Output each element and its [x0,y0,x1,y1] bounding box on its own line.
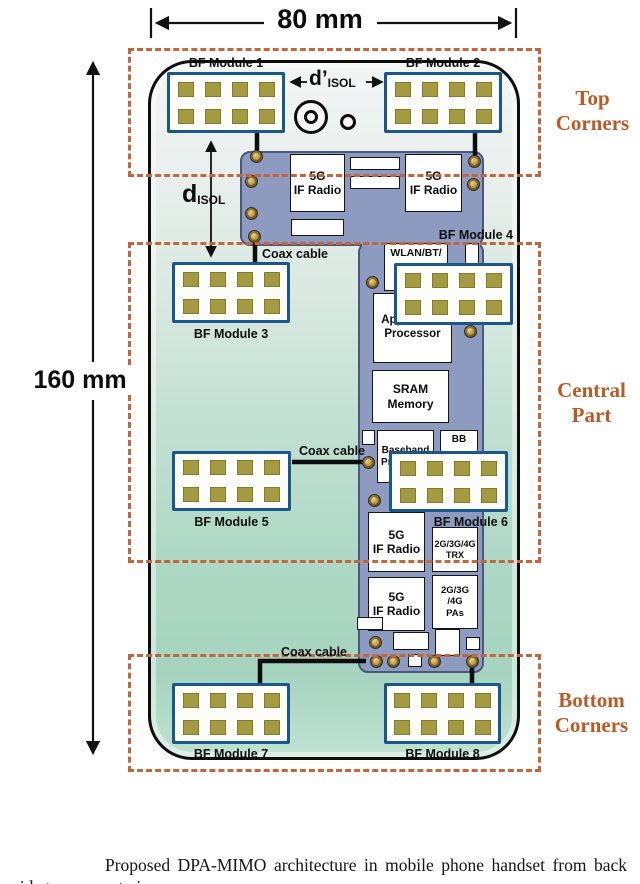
bf-module-4-label: BF Module 4 [394,228,513,242]
central-part-region-box [128,242,541,563]
coax-connector [245,207,258,220]
figure: 80 mm 160 mm 5G IF Radio 5G IF Radio WLA… [0,0,640,884]
top-corners-label: Top Corners [545,86,640,136]
d-isol-label: dISOL [182,180,225,209]
bottom-corners-region-box [128,654,541,772]
chip-blank-2 [350,176,400,189]
chip-2g3g4g-pas: 2G/3G /4G PAs [432,575,478,629]
d-isol-prime-label: d’ISOL [309,67,356,91]
height-dimension-label: 160 mm [22,366,138,395]
figure-caption: Proposed DPA-MIMO architecture in mobile… [0,854,640,884]
chip-blank-6 [357,617,383,630]
coax-cable-label-bottom: Coax cable [281,645,347,659]
coax-connector [369,636,382,649]
chip-blank-3 [291,219,344,236]
width-dimension-label: 80 mm [268,4,372,35]
coax-cable-label-mid: Coax cable [299,444,365,458]
chip-blank-9 [466,637,480,650]
coax-connector [467,178,480,191]
coax-cable-label-top: Coax cable [262,247,328,261]
central-part-label: Central Part [543,378,640,428]
chip-blank-7 [393,632,429,650]
bottom-corners-label: Bottom Corners [543,688,640,738]
chip-blank-8 [435,629,460,656]
